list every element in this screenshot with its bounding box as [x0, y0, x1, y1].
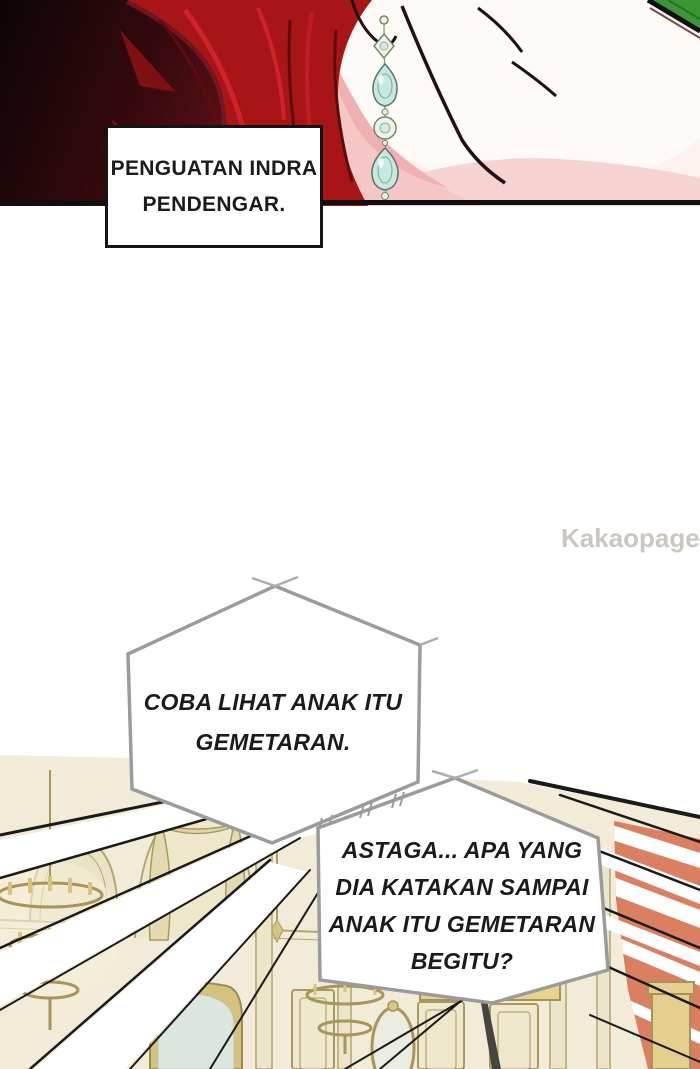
comic-page: PENGUATAN INDRA PENDENGAR. Kakaopage .co…	[0, 0, 700, 1069]
bubble-1-text: COBA LIHAT ANAK ITU GEMETARAN.	[118, 682, 428, 762]
bubble-line: ANAK ITU GEMETARAN	[312, 906, 612, 943]
bubble-line: ASTAGA... APA YANG	[312, 832, 612, 869]
watermark-brand: Kakaopage	[561, 523, 700, 553]
caption-line: PENDENGAR.	[142, 187, 285, 223]
bubble-line: COBA LIHAT ANAK ITU	[118, 682, 428, 722]
bubble-line: BEGITU?	[312, 943, 612, 980]
caption-line: PENGUATAN INDRA	[111, 151, 318, 187]
bubble-line: DIA KATAKAN SAMPAI	[312, 869, 612, 906]
bubble-line: GEMETARAN.	[118, 722, 428, 762]
caption-box: PENGUATAN INDRA PENDENGAR.	[105, 125, 323, 248]
watermark: Kakaopage .co.id	[561, 523, 700, 554]
bubble-2-text: ASTAGA... APA YANG DIA KATAKAN SAMPAI AN…	[312, 832, 612, 980]
